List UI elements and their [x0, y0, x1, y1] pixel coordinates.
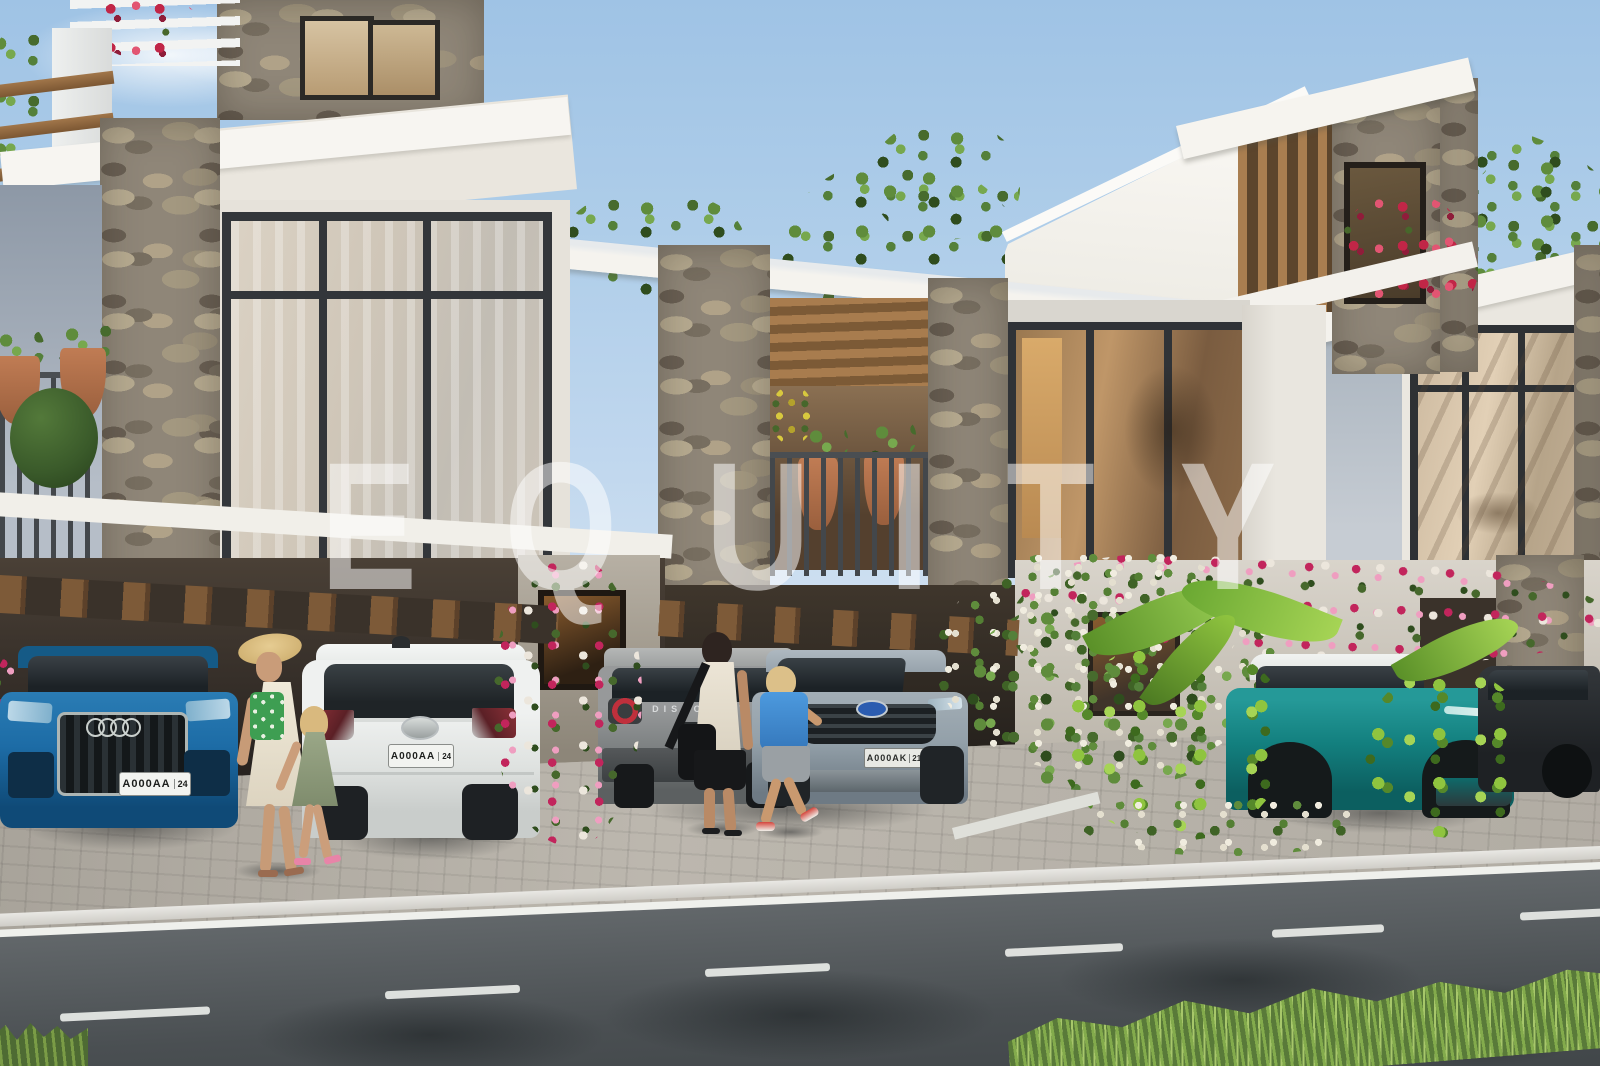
architectural-rendering: A000AA 24 A000AA 24 DISCOVERY	[0, 0, 1600, 1066]
tropical-plant	[1360, 668, 1530, 838]
tree-canopy	[870, 120, 1020, 240]
window-mullion	[231, 291, 543, 299]
pink-sandal	[294, 858, 311, 865]
little-girl	[282, 706, 352, 882]
sandal	[258, 870, 278, 877]
license-plate: A000AA 24	[388, 744, 454, 768]
groundcover-flowers	[1080, 792, 1370, 856]
green-tote-bag	[250, 692, 284, 740]
blue-suv: A000AA 24	[0, 640, 240, 830]
plate-region: 24	[438, 752, 451, 761]
plate-number: A000AA	[391, 751, 435, 762]
sandal	[724, 830, 742, 836]
shorts	[762, 746, 810, 782]
watermark-letter: Q	[504, 452, 617, 600]
leg	[760, 778, 782, 825]
car-headlight	[185, 698, 230, 721]
skirt	[694, 750, 746, 790]
license-plate: A000AA 24	[119, 772, 191, 796]
watermark-letter: E	[320, 452, 417, 600]
mazda-wing-icon	[401, 716, 439, 740]
leg	[722, 788, 736, 833]
car-headlight	[7, 700, 52, 723]
sneaker	[756, 822, 775, 831]
watermark-letter: Y	[1179, 452, 1276, 600]
balcony-round-bush	[10, 388, 98, 488]
watermark-letter: I	[889, 452, 929, 600]
car-intake	[8, 752, 54, 798]
leg	[312, 804, 332, 861]
car-wheel	[920, 746, 964, 804]
license-plate: A000AK 21	[864, 748, 924, 768]
leg	[704, 788, 715, 830]
audi-rings-icon	[86, 718, 154, 736]
blue-tshirt	[760, 692, 808, 750]
plate-region: 24	[174, 779, 188, 789]
leg	[298, 804, 314, 859]
blue-oval-icon	[856, 700, 888, 718]
plate-number: A000AA	[122, 778, 170, 790]
car-antenna-fin	[392, 636, 410, 648]
equity-watermark: E Q U I T Y	[308, 452, 1288, 602]
plate-number: A000AK	[867, 753, 908, 763]
head	[256, 652, 282, 682]
interior-silhouette	[1438, 483, 1558, 543]
watermark-letter: T	[1006, 452, 1095, 600]
hair	[702, 632, 732, 666]
sandal	[702, 828, 720, 834]
ring	[122, 718, 141, 737]
boy-running	[748, 664, 832, 840]
car-wheel	[1542, 744, 1592, 798]
watermark-letter: U	[705, 452, 810, 600]
